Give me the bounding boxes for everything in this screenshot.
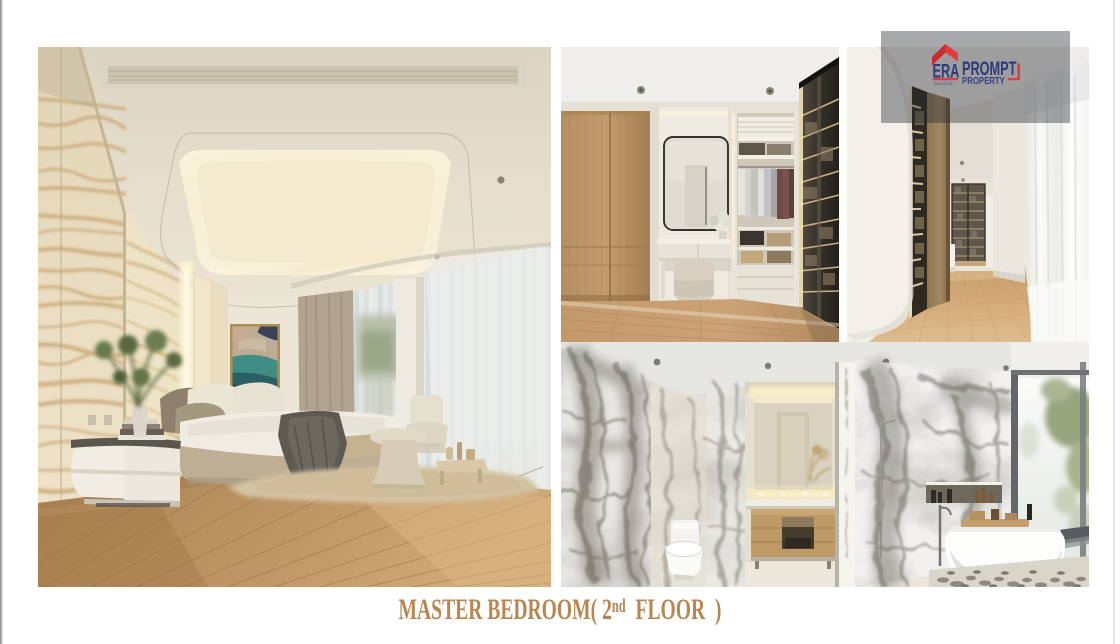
svg-text:PROPERTY: PROPERTY (962, 75, 1005, 86)
svg-text:REAL ESTATE: REAL ESTATE (934, 82, 954, 86)
